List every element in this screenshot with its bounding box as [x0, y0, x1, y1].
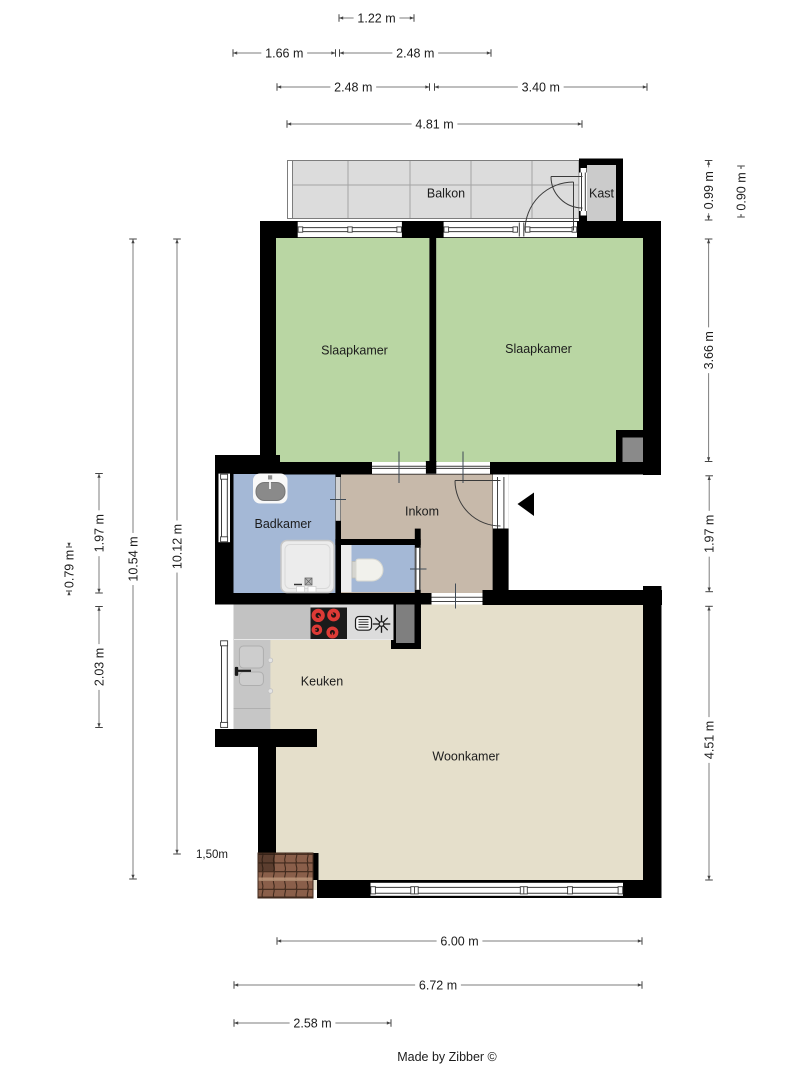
svg-text:Balkon: Balkon — [427, 187, 465, 201]
svg-text:0.99 m: 0.99 m — [702, 171, 716, 209]
svg-text:2.48 m: 2.48 m — [396, 46, 434, 60]
svg-text:1.22 m: 1.22 m — [357, 11, 395, 25]
svg-text:10.54 m: 10.54 m — [126, 536, 140, 581]
svg-text:0.79 m: 0.79 m — [62, 550, 76, 588]
svg-text:1,50m: 1,50m — [196, 849, 228, 861]
svg-text:4.81 m: 4.81 m — [415, 117, 453, 131]
svg-text:2.58 m: 2.58 m — [293, 1016, 331, 1030]
svg-text:6.00 m: 6.00 m — [440, 934, 478, 948]
svg-text:Made by Zibber ©: Made by Zibber © — [397, 1050, 497, 1064]
svg-text:Woonkamer: Woonkamer — [432, 750, 499, 764]
svg-text:1.97 m: 1.97 m — [703, 515, 717, 553]
svg-text:Kast: Kast — [589, 187, 615, 201]
svg-text:Badkamer: Badkamer — [255, 517, 312, 531]
svg-text:3.40 m: 3.40 m — [522, 80, 560, 94]
svg-text:0.90 m: 0.90 m — [734, 172, 748, 210]
svg-text:Slaapkamer: Slaapkamer — [505, 342, 572, 356]
svg-text:10.12 m: 10.12 m — [170, 524, 184, 569]
svg-text:Keuken: Keuken — [301, 675, 343, 689]
svg-text:2.48 m: 2.48 m — [334, 80, 372, 94]
svg-text:Slaapkamer: Slaapkamer — [321, 344, 388, 358]
svg-text:3.66 m: 3.66 m — [702, 331, 716, 369]
svg-text:Inkom: Inkom — [405, 505, 439, 519]
svg-text:1.66 m: 1.66 m — [265, 46, 303, 60]
svg-text:1.97 m: 1.97 m — [92, 514, 106, 552]
svg-text:2.03 m: 2.03 m — [92, 648, 106, 686]
svg-text:6.72 m: 6.72 m — [419, 978, 457, 992]
svg-text:4.51 m: 4.51 m — [702, 721, 716, 759]
